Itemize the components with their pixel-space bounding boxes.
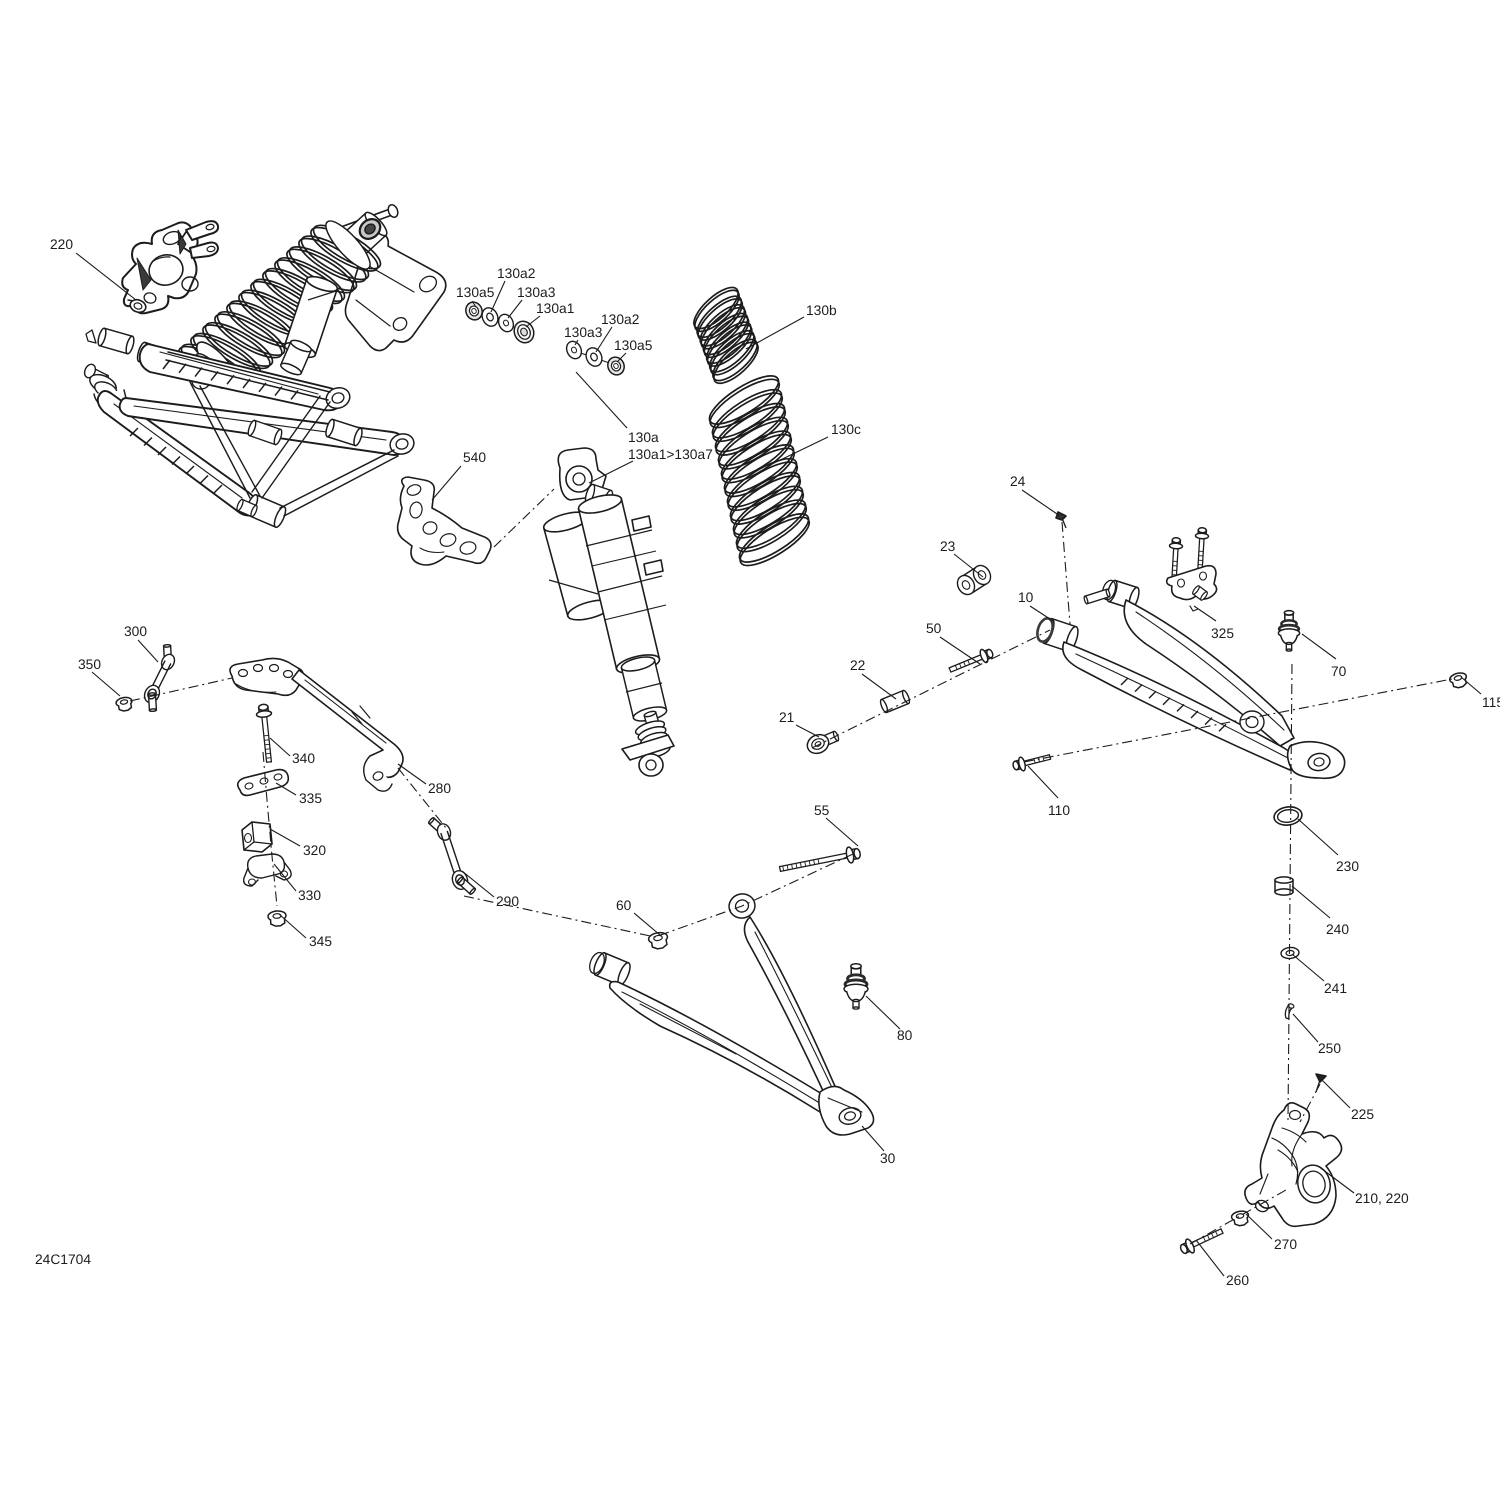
svg-text:540: 540 — [463, 450, 486, 465]
svg-text:130a5: 130a5 — [614, 338, 653, 353]
svg-text:130a1>130a7: 130a1>130a7 — [628, 447, 713, 462]
svg-text:21: 21 — [779, 710, 794, 725]
svg-text:220: 220 — [50, 237, 73, 252]
svg-text:320: 320 — [303, 843, 326, 858]
svg-text:110: 110 — [1048, 803, 1070, 818]
svg-text:22: 22 — [850, 658, 865, 673]
svg-text:130a1: 130a1 — [536, 301, 574, 316]
svg-text:325: 325 — [1211, 626, 1234, 641]
svg-text:115: 115 — [1482, 695, 1500, 710]
svg-text:130a3: 130a3 — [517, 285, 556, 300]
svg-text:241: 241 — [1324, 981, 1347, 996]
svg-text:60: 60 — [616, 898, 632, 913]
svg-text:225: 225 — [1351, 1107, 1374, 1122]
svg-text:130c: 130c — [831, 422, 861, 437]
svg-text:24: 24 — [1010, 474, 1026, 489]
svg-text:10: 10 — [1018, 590, 1034, 605]
svg-text:260: 260 — [1226, 1273, 1249, 1288]
svg-text:130a3: 130a3 — [564, 325, 603, 340]
svg-text:210, 220: 210, 220 — [1355, 1191, 1409, 1206]
svg-text:30: 30 — [880, 1151, 896, 1166]
svg-text:280: 280 — [428, 781, 451, 796]
svg-text:330: 330 — [298, 888, 321, 903]
svg-text:55: 55 — [814, 803, 830, 818]
svg-text:270: 270 — [1274, 1237, 1297, 1252]
svg-text:130a2: 130a2 — [601, 312, 639, 327]
svg-text:130a: 130a — [628, 430, 659, 445]
svg-text:300: 300 — [124, 624, 147, 639]
svg-text:345: 345 — [309, 934, 332, 949]
svg-text:350: 350 — [78, 657, 101, 672]
svg-text:50: 50 — [926, 621, 942, 636]
svg-text:340: 340 — [292, 751, 315, 766]
svg-text:335: 335 — [299, 791, 322, 806]
svg-text:130b: 130b — [806, 303, 837, 318]
svg-text:240: 240 — [1326, 922, 1349, 937]
svg-text:130a2: 130a2 — [497, 266, 535, 281]
svg-text:80: 80 — [897, 1028, 913, 1043]
svg-text:130a5: 130a5 — [456, 285, 495, 300]
svg-text:70: 70 — [1331, 664, 1347, 679]
svg-text:290: 290 — [496, 894, 519, 909]
svg-text:23: 23 — [940, 539, 956, 554]
svg-text:230: 230 — [1336, 859, 1359, 874]
svg-text:250: 250 — [1318, 1041, 1341, 1056]
svg-text:24C1704: 24C1704 — [35, 1252, 91, 1267]
